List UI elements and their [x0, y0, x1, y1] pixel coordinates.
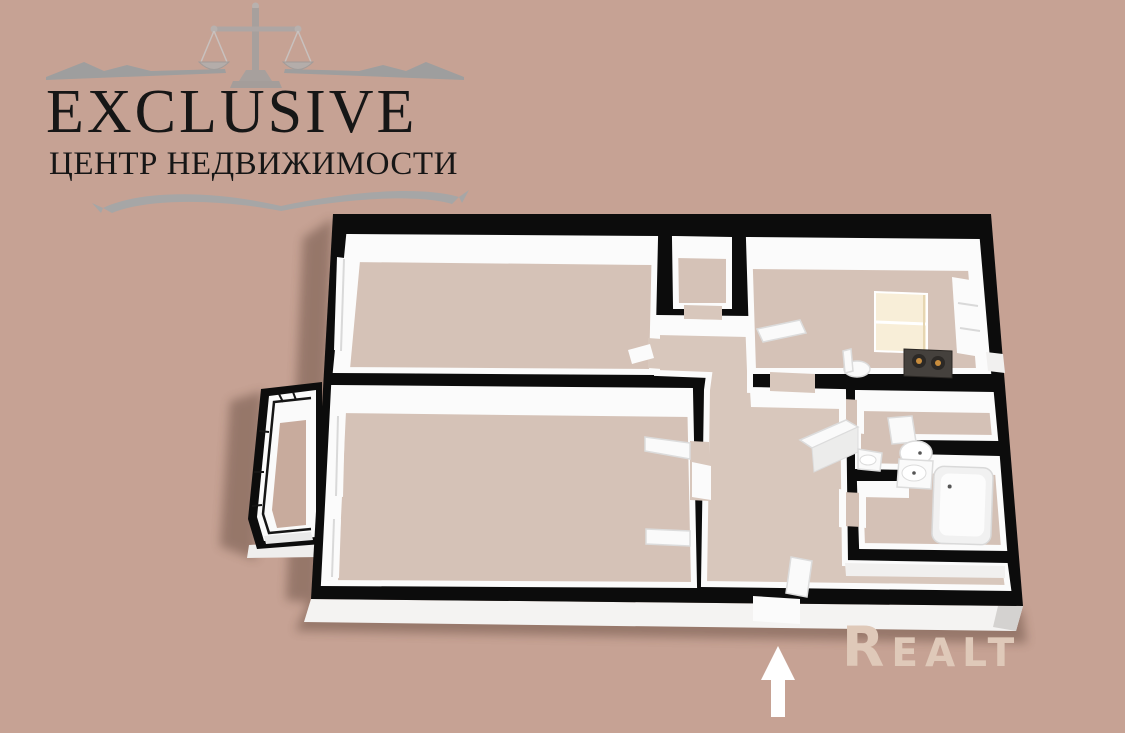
- logo-title: EXCLUSIVE: [46, 80, 417, 144]
- bedroom-balcony-door-window: [329, 414, 345, 497]
- storage-closet: [675, 239, 729, 306]
- logo-subtitle: ЦЕНТР НЕДВИЖИМОСТИ: [49, 147, 458, 182]
- bedroom-shelf: [646, 529, 690, 546]
- bathroom-sink: [897, 459, 933, 489]
- logo-flourish-bottom: [92, 190, 469, 213]
- bathroom-door: [839, 489, 866, 528]
- living-room: [336, 237, 655, 372]
- entrance-arrow-icon: [761, 646, 795, 717]
- living-room-window: [334, 257, 352, 352]
- wc-corner-sink: [858, 449, 882, 471]
- scales-of-justice-icon: [199, 3, 313, 89]
- closet-door: [684, 305, 728, 333]
- bathtub: [932, 466, 994, 545]
- bedroom-window: [325, 517, 341, 578]
- kitchen-window-blinds: [875, 292, 927, 353]
- bedroom: [324, 388, 694, 585]
- page: EXCLUSIVE ЦЕНТР НЕДВИЖИМОСТИ Realt: [0, 0, 1125, 733]
- stove: [904, 349, 952, 378]
- watermark: Realt: [842, 618, 1021, 676]
